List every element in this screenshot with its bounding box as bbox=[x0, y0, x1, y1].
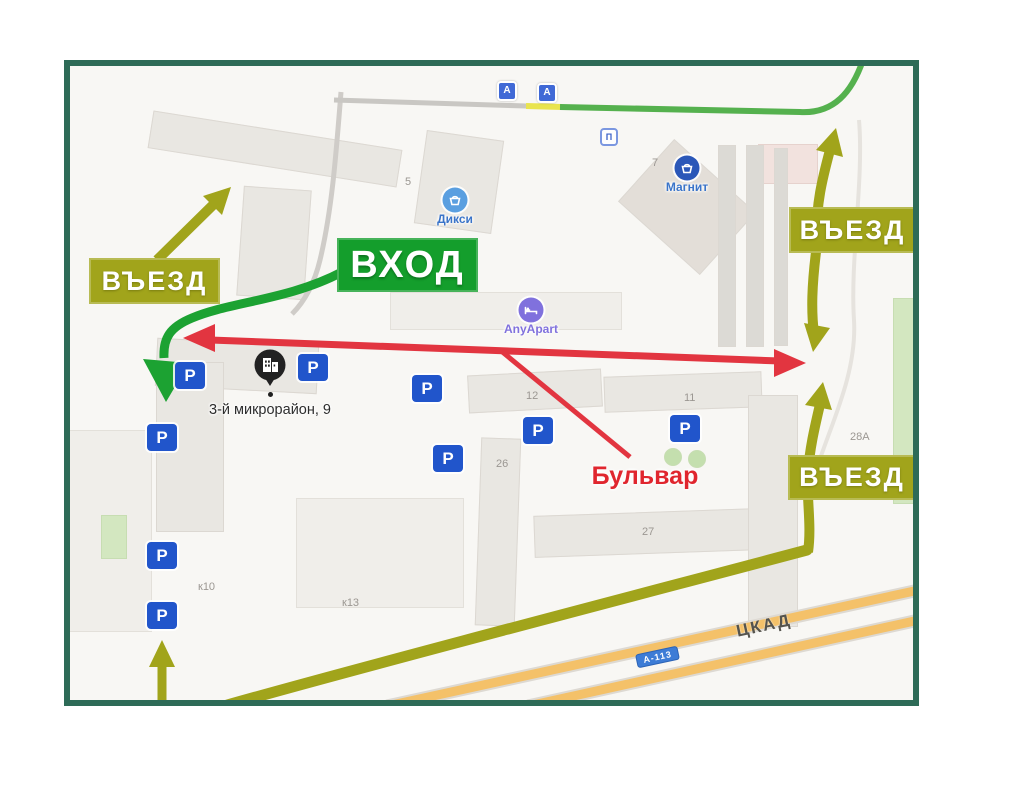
transit-stop-icon: П bbox=[600, 128, 618, 146]
parking-icon: P bbox=[298, 354, 328, 381]
pin-anchor-dot bbox=[268, 392, 273, 397]
address-label: 3-й микрорайон, 9 bbox=[170, 402, 370, 418]
parking-icon: P bbox=[412, 375, 442, 402]
bus-stop-icon: А bbox=[497, 81, 517, 101]
poi-diksi bbox=[443, 188, 468, 213]
parking-icon: P bbox=[147, 542, 177, 569]
poi-anyapart bbox=[519, 298, 544, 323]
parking-icon: P bbox=[175, 362, 205, 389]
poi-magnit bbox=[675, 156, 700, 181]
parking-icon: P bbox=[147, 424, 177, 451]
hotel-bed-icon bbox=[519, 298, 544, 323]
map-image: ЦКАД А-113 5 7 12 11 26 27 к10 к13 28А bbox=[64, 60, 919, 706]
entrance-drive-label-bottom-right: ВЪЕЗД bbox=[788, 455, 916, 500]
poi-anyapart-label: AnyApart bbox=[504, 322, 558, 336]
boulevard-label: Бульвар bbox=[565, 462, 725, 491]
bus-stop-icon: А bbox=[537, 83, 557, 103]
destination-pin bbox=[252, 347, 288, 398]
parking-icon: P bbox=[670, 415, 700, 442]
entrance-drive-label-left: ВЪЕЗД bbox=[89, 258, 220, 304]
parking-icon: P bbox=[147, 602, 177, 629]
entrance-drive-label-top-right: ВЪЕЗД bbox=[789, 207, 916, 253]
store-basket-icon bbox=[443, 188, 468, 213]
poi-diksi-label: Дикси bbox=[437, 212, 473, 226]
store-basket-icon bbox=[675, 156, 700, 181]
parking-icon: P bbox=[433, 445, 463, 472]
parking-icon: P bbox=[523, 417, 553, 444]
poi-magnit-label: Магнит bbox=[666, 180, 708, 194]
entrance-walk-label: ВХОД bbox=[337, 238, 478, 292]
